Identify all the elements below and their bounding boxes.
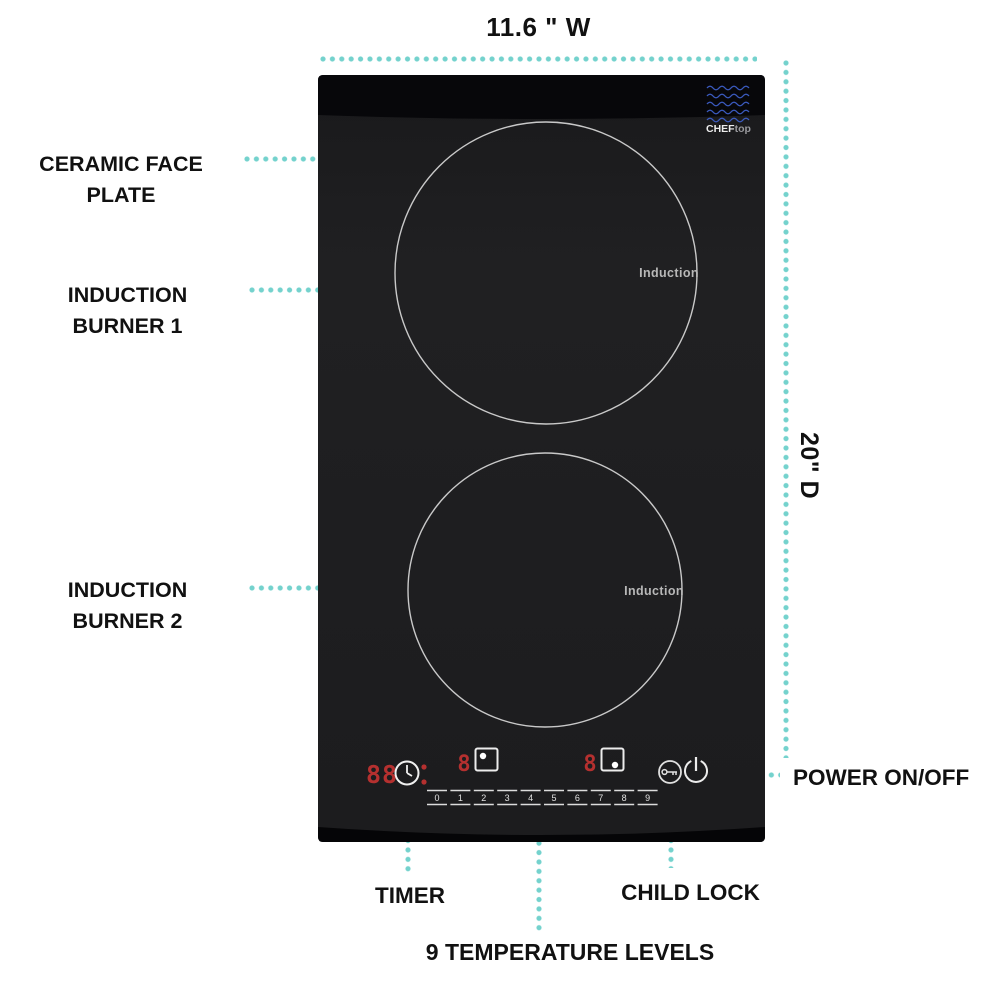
brand-logo-bold: CHEF (706, 123, 735, 135)
temp-button-label: 0 (434, 793, 439, 803)
burner-2-induction-label: Induction (624, 584, 684, 598)
burner-1-induction-label: Induction (639, 266, 699, 280)
temp-button-label: 8 (622, 793, 627, 803)
temp-button-label: 2 (481, 793, 486, 803)
temp-button-label: 9 (645, 793, 650, 803)
product-diagram: 11.6 " W 20" D CERAMIC FACE PLATE INDUCT… (0, 0, 1000, 1000)
cooktop-figure: CHEFtop Induction Induction 88 8 (318, 75, 765, 842)
depth-dimension-label: 20" D (794, 432, 823, 499)
callout-power-on-off: POWER ON/OFF (793, 762, 969, 793)
callout-timer: TIMER (330, 880, 490, 911)
cooktop-top-band (318, 75, 765, 119)
timer-display: 88 (366, 760, 398, 789)
callout-induction-burner-2: INDUCTION BURNER 2 (25, 575, 230, 637)
callout-line: PLATE (18, 180, 224, 211)
depth-dimension-line (783, 60, 789, 758)
brand-logo-light: top (735, 123, 751, 135)
callout-temperature-levels: 9 TEMPERATURE LEVELS (360, 937, 780, 968)
burner-2-level-digit: 8 (583, 752, 596, 777)
callout-line: BURNER 2 (25, 606, 230, 637)
callout-induction-burner-1: INDUCTION BURNER 1 (25, 280, 230, 342)
callout-ceramic-face-plate: CERAMIC FACE PLATE (18, 149, 224, 211)
callout-line: BURNER 1 (25, 311, 230, 342)
brand-logo: CHEFtop (706, 123, 751, 135)
temp-button-label: 3 (505, 793, 510, 803)
width-dimension-label: 11.6 " W (320, 12, 757, 43)
callout-line: INDUCTION (25, 280, 230, 311)
temp-button-label: 6 (575, 793, 580, 803)
burner-1-level-digit: 8 (457, 752, 470, 777)
callout-line: INDUCTION (25, 575, 230, 606)
temp-button-label: 1 (458, 793, 463, 803)
temp-button-label: 7 (598, 793, 603, 803)
width-dimension-line (320, 56, 757, 62)
temp-button-label: 5 (551, 793, 556, 803)
temp-button-label: 4 (528, 793, 533, 803)
callout-line: CERAMIC FACE (18, 149, 224, 180)
callout-child-lock: CHILD LOCK (598, 877, 783, 908)
